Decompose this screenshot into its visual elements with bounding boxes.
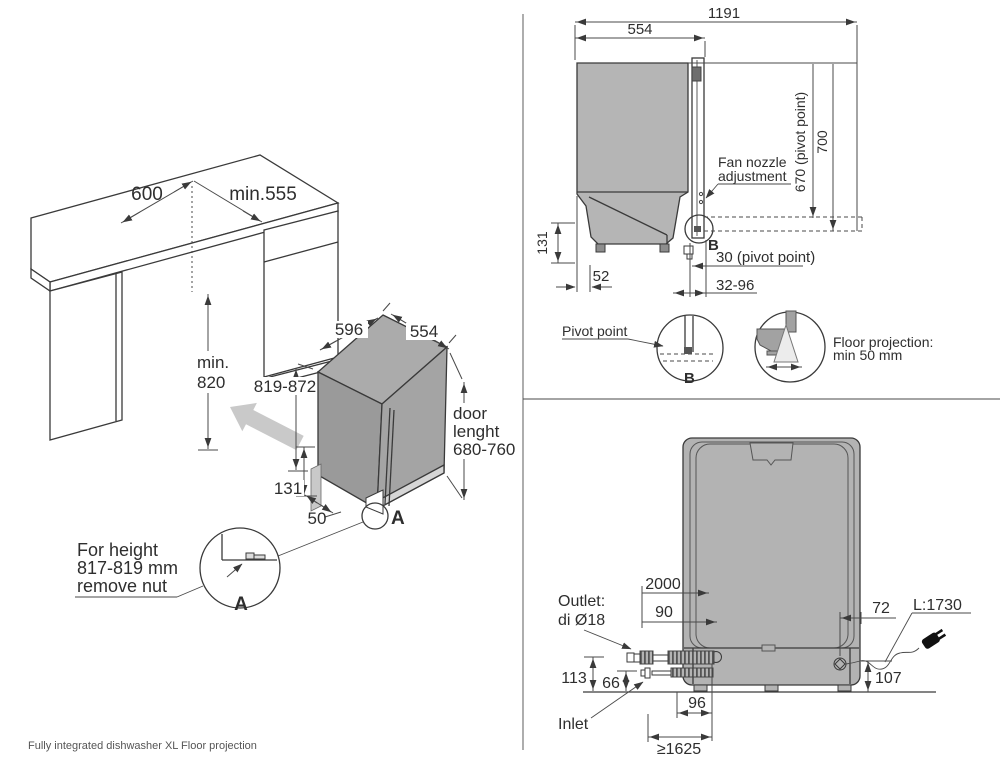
dim-min820-label-1: min. bbox=[197, 353, 229, 372]
cord-connector bbox=[834, 658, 846, 670]
dim-52-label: 52 bbox=[593, 268, 610, 285]
dim-min555-label: min.555 bbox=[229, 184, 297, 205]
dishwasher-installation-diagram: 600 min.555 min. 820 bbox=[0, 0, 1000, 762]
fan-nozzle-note: Fan nozzle adjustment bbox=[706, 154, 791, 198]
door-open-dashed bbox=[704, 217, 862, 231]
dim-596-label: 596 bbox=[335, 320, 363, 339]
rear-leg bbox=[596, 244, 605, 252]
note-height-2: 817-819 mm bbox=[77, 558, 178, 578]
dim-1191-label: 1191 bbox=[708, 5, 740, 22]
dim-107-label: 107 bbox=[875, 670, 902, 687]
dim-cord-length: L:1730 bbox=[885, 597, 971, 662]
foot-left bbox=[694, 685, 707, 691]
door-length-label-2: lenght bbox=[453, 422, 500, 441]
outlet-label-1: Outlet: bbox=[558, 593, 605, 610]
dim-niche-height: min. 820 bbox=[193, 294, 231, 450]
installation-iso-view: 600 min.555 min. 820 bbox=[31, 155, 515, 615]
dim-600-label: 600 bbox=[131, 184, 163, 205]
front-foot bbox=[684, 246, 693, 254]
dim-66-label: 66 bbox=[602, 675, 620, 692]
door-length-label-1: door bbox=[453, 404, 487, 423]
dim-height-700: 700 bbox=[814, 64, 833, 231]
detail-b2-label: B bbox=[684, 370, 695, 387]
dim-min820-label-2: 820 bbox=[197, 373, 225, 392]
detail-a-big-label: A bbox=[234, 594, 248, 615]
dim-90-label: 90 bbox=[655, 604, 673, 621]
dim-2000-label: 2000 bbox=[645, 576, 681, 593]
pivot-pin bbox=[694, 226, 701, 232]
dim-131-label: 131 bbox=[274, 479, 302, 498]
left-cabinet bbox=[50, 272, 122, 440]
dim-inlet-height-66: 66 bbox=[602, 671, 637, 692]
dim-base-131: 131 bbox=[534, 223, 575, 263]
note-height-3: remove nut bbox=[77, 576, 167, 596]
floor-projection-label-2: min 50 mm bbox=[833, 347, 902, 363]
dim-700-label: 700 bbox=[814, 130, 830, 154]
rear-view: L:1730 2000 90 72 107 bbox=[558, 438, 971, 758]
nozzle-hole-1 bbox=[699, 192, 702, 195]
floor-projection-detail: Floor projection: min 50 mm bbox=[755, 311, 933, 382]
foot-center bbox=[765, 685, 778, 691]
power-plug-icon bbox=[921, 628, 947, 650]
dim-819-872-label: 819-872 bbox=[254, 377, 316, 396]
pivot-point-detail: B Pivot point bbox=[562, 315, 723, 387]
dim-113-label: 113 bbox=[561, 670, 587, 687]
pivot-point-label: Pivot point bbox=[562, 323, 627, 339]
dim-depth-554: 554 bbox=[575, 21, 705, 57]
mid-leg bbox=[660, 244, 669, 252]
pivot-point-pin bbox=[684, 347, 692, 354]
dim-131-side-label: 131 bbox=[534, 231, 550, 255]
inlet-label-group: Inlet bbox=[558, 682, 643, 733]
dim-dw-front-gap: 50 bbox=[305, 495, 341, 528]
inlet-label: Inlet bbox=[558, 716, 589, 733]
side-door bbox=[692, 58, 704, 238]
detail-a-label: A bbox=[391, 508, 405, 529]
push-direction-arrow bbox=[230, 403, 304, 450]
dim-32-96-label: 32-96 bbox=[716, 277, 754, 294]
detail-a-callout: A A For height 817-819 mm remove nut bbox=[75, 503, 405, 615]
fan-note-2: adjustment bbox=[718, 168, 787, 184]
dim-door-length: door lenght 680-760 bbox=[447, 353, 515, 500]
hinge-bracket bbox=[692, 67, 701, 81]
dim-554-side-label: 554 bbox=[627, 21, 652, 38]
side-view: 1191 554 670 (pivot point) 700 131 bbox=[534, 5, 862, 297]
dim-range-32-96: 32-96 bbox=[673, 277, 757, 294]
note-height-1: For height bbox=[77, 540, 158, 560]
technical-drawing: 600 min.555 min. 820 bbox=[0, 0, 1000, 762]
outlet-label: Outlet: di Ø18 bbox=[558, 593, 631, 649]
dim-inlet-min-1625: ≥1625 bbox=[648, 714, 712, 758]
dim-L1730-label: L:1730 bbox=[913, 597, 962, 614]
foot-right bbox=[838, 685, 851, 691]
dim-outlet-height-113: 113 bbox=[561, 657, 604, 691]
dim-dw-plinth: 131 bbox=[271, 447, 317, 498]
nut-hardware bbox=[246, 553, 254, 559]
outlet-hose bbox=[627, 651, 722, 664]
dim-30-label: 30 (pivot point) bbox=[716, 249, 815, 266]
dim-50-label: 50 bbox=[308, 509, 327, 528]
nozzle-hole-2 bbox=[699, 200, 702, 203]
dim-670-label: 670 (pivot point) bbox=[792, 92, 808, 192]
figure-caption: Fully integrated dishwasher XL Floor pro… bbox=[28, 740, 257, 752]
dim-1625-label: ≥1625 bbox=[657, 741, 701, 758]
dim-96-label: 96 bbox=[688, 695, 706, 712]
side-body bbox=[577, 63, 688, 244]
outlet-label-2: di Ø18 bbox=[558, 612, 605, 629]
dim-554-label: 554 bbox=[410, 322, 438, 341]
door-length-label-3: 680-760 bbox=[453, 440, 515, 459]
inlet-hose bbox=[641, 668, 713, 678]
dim-cord-height-107: 107 bbox=[861, 661, 902, 692]
dim-72-label: 72 bbox=[872, 600, 890, 617]
dim-pivot-670: 670 (pivot point) bbox=[792, 64, 813, 218]
right-cabinet bbox=[264, 211, 338, 385]
